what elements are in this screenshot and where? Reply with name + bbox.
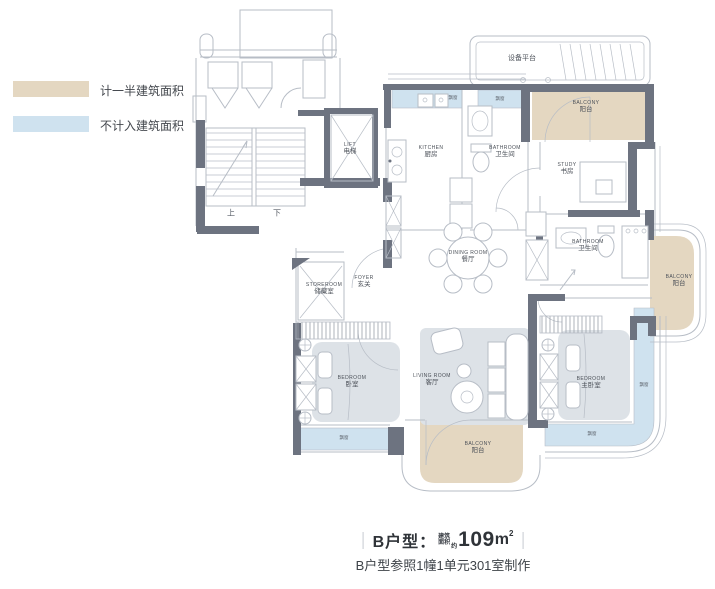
stairs-down-label: 下 <box>273 208 281 219</box>
caption-divider <box>522 532 523 549</box>
bay-window-label: 飘窗 <box>449 95 458 101</box>
area-value: 109 <box>458 528 495 552</box>
stairs-up-label: 上 <box>227 208 235 219</box>
unit-name: B户型： <box>373 528 437 552</box>
unit-note: B户型参照1幢1单元301室制作 <box>356 555 531 574</box>
floorplan-page: 计一半建筑面积 不计入建筑面积 <box>0 0 715 589</box>
caption-divider <box>363 532 364 549</box>
bay-window-label: 飘窗 <box>640 382 649 388</box>
equipment-platform-label: 设备平台 <box>508 53 536 63</box>
area-superscript: 2 <box>509 529 513 538</box>
unit-title: B户型： 建筑 面积 约 109 m 2 <box>354 528 533 552</box>
area-approx: 约 <box>451 541 457 550</box>
bay-window-label: 飘窗 <box>340 435 349 441</box>
area-unit: m <box>495 531 509 549</box>
floorplan-drawing <box>0 0 715 589</box>
bay-window-label: 飘窗 <box>588 431 597 437</box>
area-prefix-line2: 面积 <box>438 540 450 546</box>
bay-window-label: 飘窗 <box>496 96 505 102</box>
area-prefix: 建筑 面积 <box>438 534 450 547</box>
